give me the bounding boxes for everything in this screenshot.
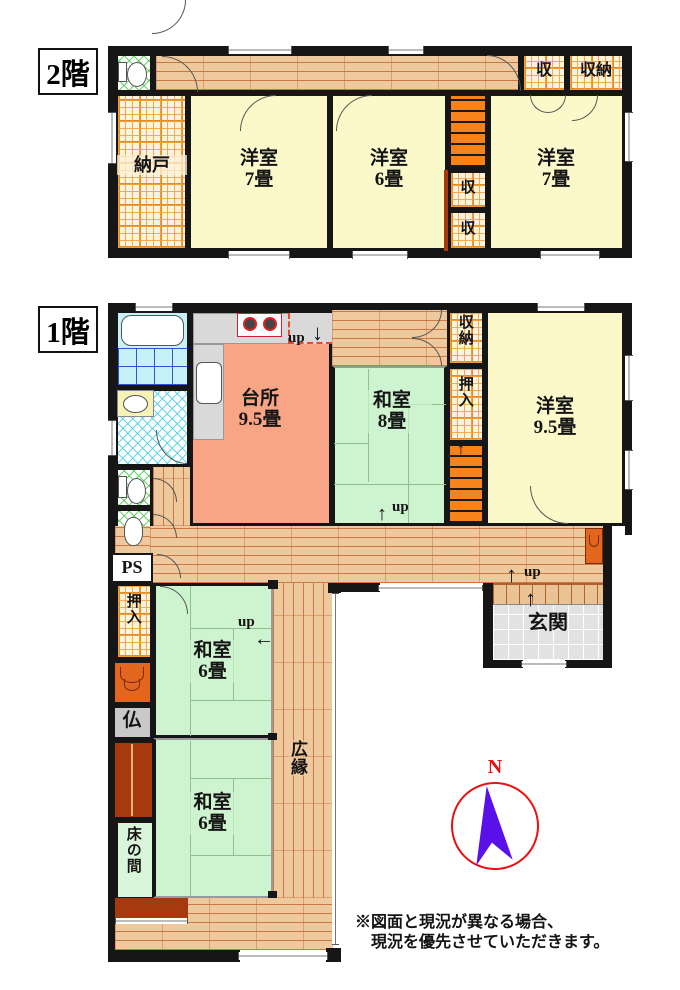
post-washitsu-2 xyxy=(268,733,277,740)
window-low-cabinet xyxy=(115,918,188,924)
disclaimer-line-1: ※図面と現況が異なる場合、 xyxy=(355,914,665,932)
wall-1f-left xyxy=(108,303,115,962)
kitchen-up-label: up xyxy=(288,330,305,347)
western-room-95-label: 洋室 9.5畳 xyxy=(515,396,595,439)
toilet-2f-bowl xyxy=(127,62,147,87)
wall-genkan-bottom-1 xyxy=(483,660,523,668)
western-room-6-label: 洋室 6畳 xyxy=(354,148,424,191)
window-bath-top xyxy=(135,303,173,311)
tatami-line xyxy=(191,778,271,779)
japanese-room-6b-size: 6畳 xyxy=(175,813,250,834)
floor2-label-box: 2階 xyxy=(38,48,98,95)
window-1f-east-1 xyxy=(625,355,633,401)
nando-label: 納戸 xyxy=(117,155,187,175)
window-2f-bottom-2 xyxy=(352,251,408,259)
stair-side-panel-2f xyxy=(444,170,448,251)
genkan-label: 玄関 xyxy=(513,612,583,634)
tall-cabinet-door-line xyxy=(131,744,133,816)
stove-burner-left xyxy=(243,317,257,331)
window-1f-east-2 xyxy=(625,450,633,490)
post-wing-se xyxy=(326,948,341,962)
closet-2f-top1-label: 収 xyxy=(526,62,562,80)
alcove-fixture xyxy=(111,660,153,705)
japanese-room-6a-name: 和室 xyxy=(175,640,250,661)
western-room-6-name: 洋室 xyxy=(354,148,424,169)
window-2f-top-2 xyxy=(388,46,424,54)
western-room-6-size: 6畳 xyxy=(354,169,424,190)
down-arrow-icon: ↓ xyxy=(312,320,323,346)
window-2f-bottom-1 xyxy=(228,251,290,259)
wall-1f-east-mid xyxy=(603,526,612,668)
washroom-basin xyxy=(123,395,148,413)
compass-north-label: N xyxy=(480,756,510,778)
shoe-cabinet xyxy=(585,528,603,564)
wall-2f-top xyxy=(108,46,632,53)
left-arrow-icon: ← xyxy=(254,628,274,651)
wall-genkan-bottom-2 xyxy=(565,660,612,668)
staircase-1f xyxy=(447,443,485,526)
tatami-line xyxy=(334,443,368,444)
disclaimer-line-2: 現況を優先させていただきます。 xyxy=(371,934,671,952)
wall-genkan-left xyxy=(483,583,493,668)
shoe-cabinet-detail xyxy=(589,535,599,547)
window-1f-top xyxy=(537,303,585,311)
up-arrow-icon: ↑ xyxy=(506,562,517,588)
wall-1f-bottom xyxy=(108,950,240,962)
tatami-line xyxy=(191,700,271,701)
toilet-1f-b-fixture xyxy=(124,517,143,546)
window-2f-bottom-3 xyxy=(540,251,600,259)
western-room-7a-name: 洋室 xyxy=(224,148,294,169)
floor2-label: 2階 xyxy=(46,51,90,93)
post-washitsu-1 xyxy=(268,580,278,589)
japanese-room-8-label: 和室 8畳 xyxy=(352,390,432,433)
closet-2f-mid2-label: 収 xyxy=(451,221,485,238)
floor1-label-box: 1階 xyxy=(38,306,98,353)
toilet-1f-a-tank xyxy=(118,476,127,498)
japanese-room-8-name: 和室 xyxy=(352,390,432,411)
toilet-2f-tank xyxy=(118,62,127,82)
wall-1f-right xyxy=(625,303,632,535)
butsudan-label: 仏 xyxy=(119,710,145,731)
window-hiroen-east xyxy=(332,593,339,945)
hallway-2f xyxy=(153,53,521,93)
door-arc-bath xyxy=(152,0,186,34)
post-wing-ne xyxy=(328,583,341,593)
western-room-7b-label: 洋室 7畳 xyxy=(521,148,591,191)
kitchen-label: 台所 9.5畳 xyxy=(215,388,305,431)
western-room-7b-size: 7畳 xyxy=(521,169,591,190)
bathroom-tile-floor xyxy=(118,348,187,385)
kitchen-name: 台所 xyxy=(215,388,305,409)
western-room-95-size: 9.5畳 xyxy=(515,417,595,438)
stairs-up-label: up xyxy=(392,499,409,516)
tall-cabinet xyxy=(111,740,155,820)
up-arrow-icon: ↑ xyxy=(457,441,465,459)
western-room-95-name: 洋室 xyxy=(515,396,595,417)
closet-1f-oshiire-right-label: 押入 xyxy=(456,376,473,408)
closet-2f-top2-label: 収納 xyxy=(570,62,622,80)
genkan-up-label: up xyxy=(524,564,541,581)
room6a-up-label: up xyxy=(238,614,255,631)
post-washitsu-3 xyxy=(268,891,277,898)
window-2f-right xyxy=(625,112,633,162)
stove-burner-right xyxy=(263,317,277,331)
western-room-7b-name: 洋室 xyxy=(521,148,591,169)
alcove-fixture-arc-2 xyxy=(124,679,140,691)
japanese-room-6a-label: 和室 6畳 xyxy=(175,640,250,683)
toilet-1f-a-bowl xyxy=(127,478,146,504)
floor1-label: 1階 xyxy=(46,309,90,351)
tokonoma-label: 床の間 xyxy=(124,826,141,874)
japanese-room-6b-label: 和室 6畳 xyxy=(175,792,250,835)
genkan-entry-door xyxy=(521,661,567,667)
kitchen-size: 9.5畳 xyxy=(215,409,305,430)
window-2f-left xyxy=(108,112,116,164)
floorplan-canvas: 2階 収 収納 納戸 洋室 7畳 洋室 6畳 収 収 洋室 7畳 1階 xyxy=(0,0,680,990)
tatami-line xyxy=(334,484,446,485)
up-arrow-icon: ↑ xyxy=(525,586,536,612)
window-1f-south xyxy=(378,585,483,591)
window-hiroen-south xyxy=(238,952,328,960)
window-2f-top-1 xyxy=(228,46,292,54)
bathtub xyxy=(121,315,184,346)
japanese-room-6a-size: 6畳 xyxy=(175,661,250,682)
japanese-room-8-size: 8畳 xyxy=(352,411,432,432)
western-room-7a-label: 洋室 7畳 xyxy=(224,148,294,191)
closet-1f-oshiire-left-label: 押入 xyxy=(124,593,141,625)
low-cabinet xyxy=(115,898,188,918)
up-arrow-icon: ↑ xyxy=(377,503,387,526)
tatami-line xyxy=(191,855,271,856)
hiroen-label: 広縁 xyxy=(288,740,307,776)
western-room-7a-size: 7畳 xyxy=(224,169,294,190)
staircase-2f xyxy=(448,93,488,170)
japanese-room-6b-name: 和室 xyxy=(175,792,250,813)
closet-1f-shunou-label: 収納 xyxy=(456,314,473,346)
closet-2f-mid1-label: 収 xyxy=(451,180,485,197)
window-washroom-west xyxy=(108,420,116,456)
pipe-space-label: PS xyxy=(114,557,150,577)
